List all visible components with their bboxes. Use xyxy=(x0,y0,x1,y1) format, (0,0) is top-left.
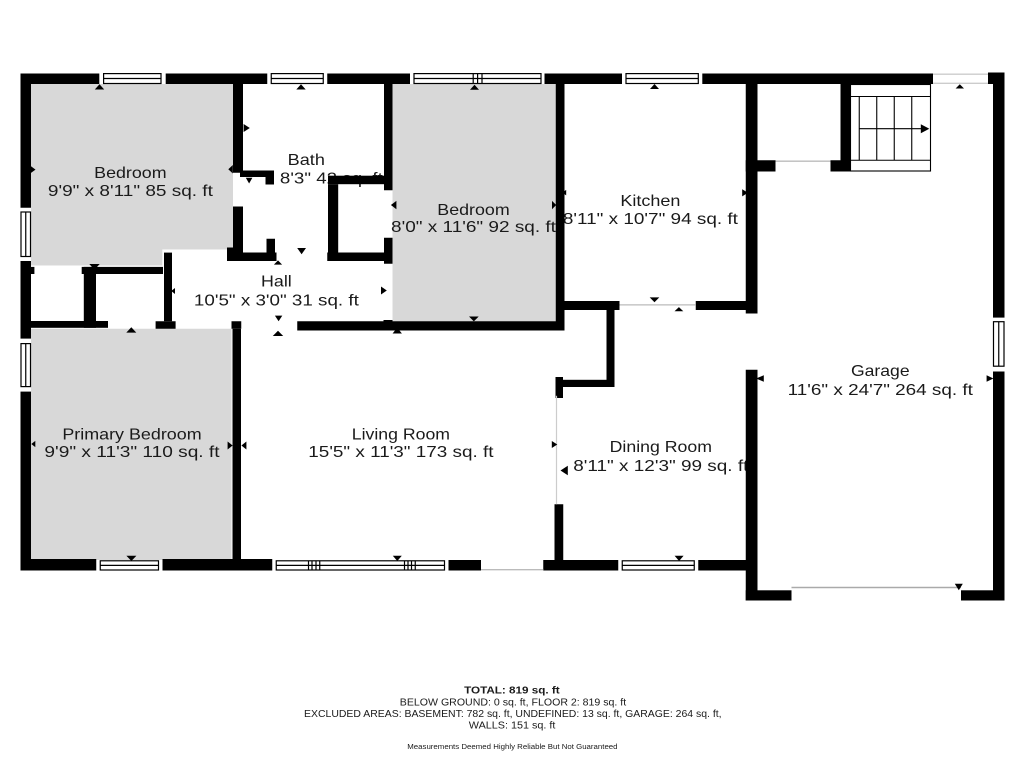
svg-text:Measurements Deemed Highly Rel: Measurements Deemed Highly Reliable But … xyxy=(407,744,617,751)
svg-text:8'0" x 11'6" 92 sq. ft: 8'0" x 11'6" 92 sq. ft xyxy=(391,219,557,236)
svg-text:11'6" x 24'7" 264 sq. ft: 11'6" x 24'7" 264 sq. ft xyxy=(788,382,974,399)
svg-text:Kitchen: Kitchen xyxy=(620,193,680,210)
svg-text:8'11" x 12'3" 99 sq. ft: 8'11" x 12'3" 99 sq. ft xyxy=(573,458,749,475)
svg-text:Bath: Bath xyxy=(288,152,325,169)
svg-text:Bedroom: Bedroom xyxy=(437,202,509,219)
svg-text:15'5" x 11'3" 173 sq. ft: 15'5" x 11'3" 173 sq. ft xyxy=(308,444,494,461)
svg-text:10'5" x 3'0" 31 sq. ft: 10'5" x 3'0" 31 sq. ft xyxy=(194,292,360,309)
svg-text:Living Room: Living Room xyxy=(352,426,450,443)
svg-text:BELOW GROUND: 0 sq. ft, FLOOR: BELOW GROUND: 0 sq. ft, FLOOR 2: 819 sq.… xyxy=(400,697,627,708)
svg-text:9'9" x 11'3" 110 sq. ft: 9'9" x 11'3" 110 sq. ft xyxy=(44,444,220,461)
svg-text:WALLS: 151 sq. ft: WALLS: 151 sq. ft xyxy=(469,721,556,732)
svg-text:Bedroom: Bedroom xyxy=(94,165,166,182)
svg-text:8'11" x 10'7" 94 sq. ft: 8'11" x 10'7" 94 sq. ft xyxy=(563,211,739,228)
svg-text:Garage: Garage xyxy=(851,363,910,380)
svg-text:Hall: Hall xyxy=(261,274,292,291)
svg-text:Dining Room: Dining Room xyxy=(610,439,712,456)
svg-text:9'9" x 8'11" 85 sq. ft: 9'9" x 8'11" 85 sq. ft xyxy=(48,183,214,200)
svg-text:TOTAL: 819 sq. ft: TOTAL: 819 sq. ft xyxy=(464,686,560,697)
svg-text:Primary Bedroom: Primary Bedroom xyxy=(62,426,201,443)
svg-text:EXCLUDED AREAS: BASEMENT: 782: EXCLUDED AREAS: BASEMENT: 782 sq. ft, UN… xyxy=(304,709,722,720)
